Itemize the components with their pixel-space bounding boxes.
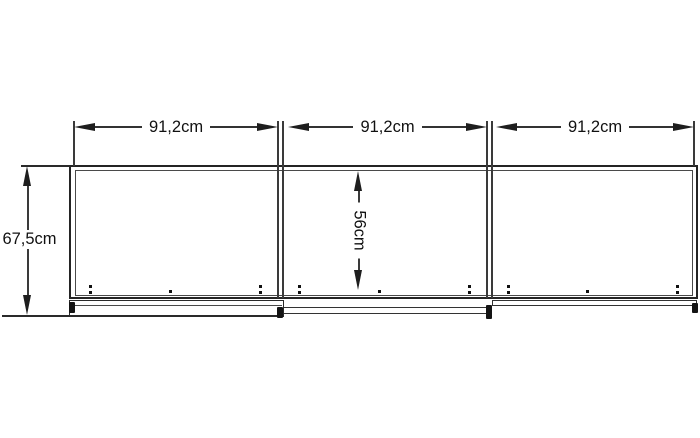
dim-arrow-down-icon xyxy=(354,270,362,290)
width-dimension-section-2: 91,2cm xyxy=(288,117,487,137)
dim-line xyxy=(517,126,561,128)
mounting-dot xyxy=(507,285,510,288)
width-dim-label-2: 91,2cm xyxy=(353,118,421,137)
mounting-dot xyxy=(586,290,589,293)
dim-line xyxy=(629,126,673,128)
dim-line xyxy=(95,126,142,128)
width-dim-label-3: 91,2cm xyxy=(561,118,629,137)
mounting-dot xyxy=(259,291,262,294)
mounting-dot xyxy=(298,291,301,294)
dim-arrow-right-icon xyxy=(673,123,694,131)
dim-arrow-right-icon xyxy=(466,123,487,131)
mounting-dot xyxy=(468,285,471,288)
mounting-dot xyxy=(676,285,679,288)
dim-arrow-right-icon xyxy=(257,123,278,131)
dim-arrow-down-icon xyxy=(23,295,31,315)
dim-line xyxy=(422,126,466,128)
mounting-dot xyxy=(89,291,92,294)
right-door-bottom-rail xyxy=(492,300,697,306)
left-rail-track-line xyxy=(71,305,282,306)
mounting-dot xyxy=(89,285,92,288)
width-dimension-section-1: 91,2cm xyxy=(74,117,278,137)
divider-1-line-b xyxy=(282,121,284,298)
divider-1-line-a xyxy=(277,121,279,298)
dim-arrow-left-icon xyxy=(288,123,309,131)
glide-foot xyxy=(486,305,492,319)
divider-2-line-a xyxy=(486,121,488,298)
cabinet-inner-outline xyxy=(75,170,693,296)
middle-door-bottom-rail xyxy=(283,307,492,314)
mounting-dot xyxy=(169,290,172,293)
glide-foot xyxy=(69,302,75,313)
divider-2-line-b xyxy=(491,121,493,298)
wardrobe-front-elevation-diagram: 91,2cm 91,2cm 91,2cm 67,5cm 56cm xyxy=(0,0,700,438)
dim-arrow-left-icon xyxy=(496,123,517,131)
mounting-dot xyxy=(378,290,381,293)
mounting-dot xyxy=(259,285,262,288)
mounting-dot xyxy=(676,291,679,294)
dim-arrow-up-icon xyxy=(354,171,362,191)
dim-arrow-up-icon xyxy=(23,166,31,186)
total-height-label: 67,5cm xyxy=(0,230,59,249)
left-door-bottom-rail xyxy=(69,300,284,316)
dim-line xyxy=(210,126,257,128)
width-dimension-section-3: 91,2cm xyxy=(496,117,694,137)
inner-height-label: 56cm xyxy=(350,203,369,259)
dim-line xyxy=(309,126,353,128)
mounting-dot xyxy=(507,291,510,294)
mounting-dot xyxy=(468,291,471,294)
glide-foot xyxy=(277,307,283,318)
dim-arrow-left-icon xyxy=(74,123,95,131)
width-dim-label-1: 91,2cm xyxy=(142,118,210,137)
glide-foot xyxy=(692,303,698,313)
mounting-dot xyxy=(298,285,301,288)
